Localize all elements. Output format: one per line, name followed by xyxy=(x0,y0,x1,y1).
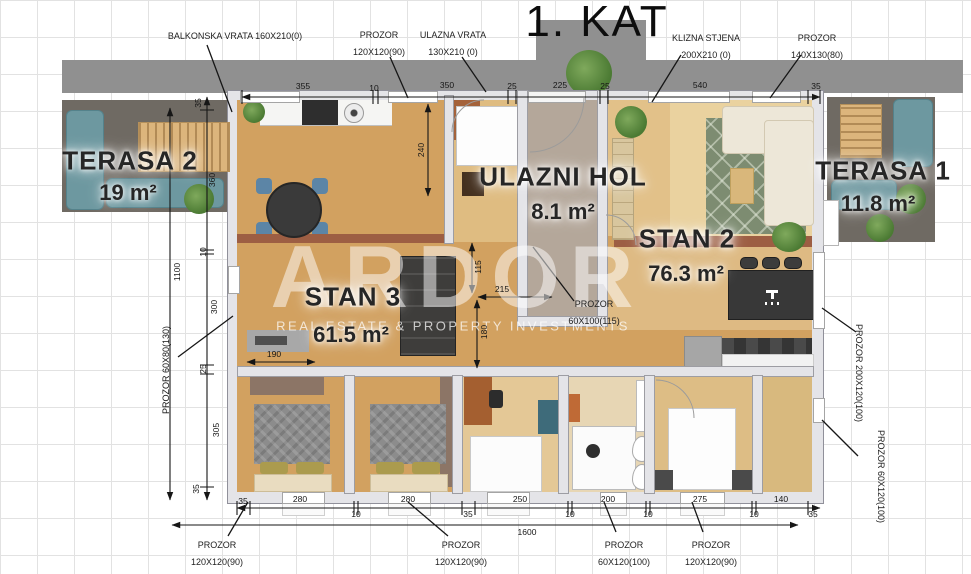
dim-value: 215 xyxy=(495,284,509,294)
annotation-size: 60X120(100) xyxy=(598,554,650,571)
dim-value: 35 xyxy=(811,81,820,91)
room-label-stan2: STAN 2 xyxy=(639,224,736,255)
annotation-window-top-2: PROZOR140X130(80) xyxy=(791,30,843,63)
dim-value: 25 xyxy=(507,81,516,91)
dim-value: 300 xyxy=(209,300,219,314)
dim-value: 350 xyxy=(440,80,454,90)
annotation-size: 120X120(90) xyxy=(685,554,737,571)
annotation-text: BALKONSKA VRATA 160X210(0) xyxy=(168,28,302,45)
dim-value: 35 xyxy=(238,496,247,506)
annotation-size: 60X100(115) xyxy=(568,313,619,330)
dim-value: 10 xyxy=(369,83,378,93)
room-area-stan3: 61.5 m² xyxy=(313,322,389,348)
annotation-text: PROZOR xyxy=(353,27,405,44)
annotation-entrance-door: ULAZNA VRATA130X210 (0) xyxy=(420,27,486,60)
dim-value: 225 xyxy=(553,80,567,90)
dim-value: 10 xyxy=(198,247,208,256)
page-title: 1. KAT xyxy=(525,0,668,47)
annotation-size: 120X120(90) xyxy=(435,554,487,571)
room-area-hol: 8.1 m² xyxy=(531,199,595,225)
dim-value: 360 xyxy=(207,173,217,187)
dim-value: 355 xyxy=(296,81,310,91)
dim-value: 10 xyxy=(749,509,758,519)
annotation-size: 120X120(90) xyxy=(353,44,405,61)
annotation-window-top-1: PROZOR120X120(90) xyxy=(353,27,405,60)
annotation-window-bottom-1: PROZOR120X120(90) xyxy=(191,537,243,570)
dim-value: 250 xyxy=(513,494,527,504)
annotation-balcony-door: BALKONSKA VRATA 160X210(0) xyxy=(168,28,302,45)
dim-value: 115 xyxy=(473,260,483,274)
dim-value: 10 xyxy=(565,509,574,519)
dim-value: 305 xyxy=(211,423,221,437)
dim-value: 200 xyxy=(601,494,615,504)
dim-value: 35 xyxy=(463,509,472,519)
room-area-stan2: 76.3 m² xyxy=(648,261,724,287)
dim-value: 35 xyxy=(808,509,817,519)
annotation-sliding-wall: KLIZNA STJENA200X210 (0) xyxy=(672,30,740,63)
annotation-text: KLIZNA STJENA xyxy=(672,30,740,47)
dim-value: 275 xyxy=(693,494,707,504)
floor-plan-canvas: ARDOR REAL ESTATE & PROPERTY INVESTMENTS… xyxy=(0,0,971,574)
dim-value: 280 xyxy=(293,494,307,504)
room-label-terasa1: TERASA 1 xyxy=(815,156,951,187)
dim-value: 35 xyxy=(193,98,203,107)
annotation-window-right-1: PROZOR 200X120(100) xyxy=(854,324,864,422)
dim-total-left: 1100 xyxy=(172,263,182,281)
dim-value: 10 xyxy=(351,509,360,519)
annotation-text: PROZOR xyxy=(791,30,843,47)
annotation-window-center: PROZOR60X100(115) xyxy=(568,296,619,329)
annotation-window-right-2: PROZOR 60X120(100) xyxy=(876,430,886,523)
dim-value: 190 xyxy=(267,349,281,359)
annotation-window-left: PROZOR 60X80(130) xyxy=(161,326,171,414)
annotation-text: PROZOR xyxy=(598,537,650,554)
annotation-size: 120X120(90) xyxy=(191,554,243,571)
room-label-stan3: STAN 3 xyxy=(305,282,402,313)
annotation-window-bottom-4: PROZOR120X120(90) xyxy=(685,537,737,570)
annotation-text: PROZOR xyxy=(435,537,487,554)
annotation-text: ULAZNA VRATA xyxy=(420,27,486,44)
dim-value: 240 xyxy=(416,143,426,157)
dim-value: 25 xyxy=(600,81,609,91)
room-area-terasa1: 11.8 m² xyxy=(841,191,916,217)
annotation-text: PROZOR xyxy=(191,537,243,554)
dim-value: 25 xyxy=(198,364,208,373)
annotation-window-bottom-2: PROZOR120X120(90) xyxy=(435,537,487,570)
annotation-size: 140X130(80) xyxy=(791,47,843,64)
dim-value: 35 xyxy=(191,484,201,493)
dim-value: 540 xyxy=(693,80,707,90)
annotation-size: 200X210 (0) xyxy=(672,47,740,64)
annotation-text: PROZOR xyxy=(685,537,737,554)
room-label-hol: ULAZNI HOL xyxy=(479,162,646,193)
annotation-window-bottom-3: PROZOR60X120(100) xyxy=(598,537,650,570)
dim-value: 280 xyxy=(401,494,415,504)
dim-value: 140 xyxy=(774,494,788,504)
dim-total-bottom: 1600 xyxy=(518,527,537,537)
room-label-terasa2: TERASA 2 xyxy=(62,146,198,177)
room-area-terasa2: 19 m² xyxy=(99,180,156,206)
dim-value: 180 xyxy=(479,325,489,339)
annotation-text: PROZOR xyxy=(568,296,619,313)
dim-value: 10 xyxy=(643,509,652,519)
annotation-size: 130X210 (0) xyxy=(420,44,486,61)
